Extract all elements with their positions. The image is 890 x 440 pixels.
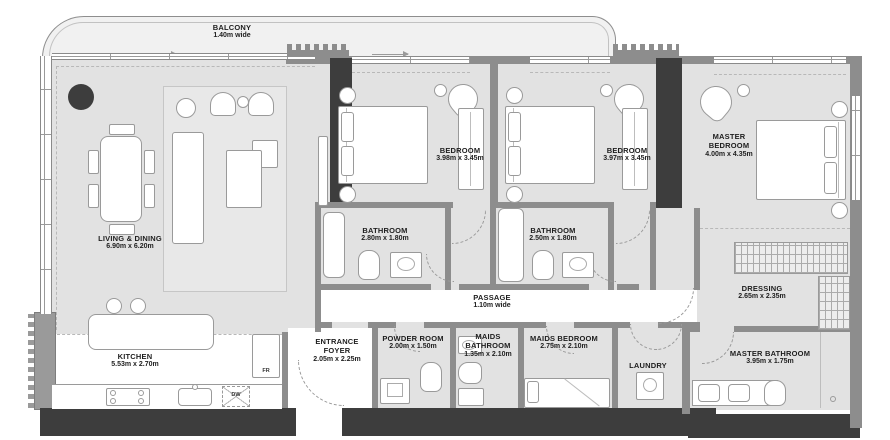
dining-chair — [144, 184, 155, 208]
wall — [315, 284, 431, 290]
burner — [138, 390, 144, 396]
burner — [110, 390, 116, 396]
pillow — [527, 381, 539, 403]
label-bathroom-1: BATHROOM2.80m x 1.80m — [335, 226, 435, 244]
structural-column — [68, 84, 94, 110]
bottom-wall-right — [688, 414, 860, 438]
dressing-wardrobe — [734, 242, 848, 274]
label-kitchen: KITCHEN5.53m x 2.70m — [75, 352, 195, 370]
label-entrance-foyer: ENTRANCE FOYER2.05m x 2.25m — [305, 337, 369, 365]
headboard-line — [838, 122, 839, 198]
wall — [372, 328, 378, 408]
basin — [387, 383, 403, 397]
coffee-table — [226, 150, 262, 208]
stool — [106, 298, 122, 314]
label-passage: PASSAGE1.10m wide — [432, 293, 552, 311]
toilet — [532, 250, 554, 280]
pillow — [824, 162, 837, 194]
label-bedroom-2: BEDROOM3.97m x 3.45m — [577, 146, 677, 164]
left-window-wall — [40, 56, 52, 314]
label-powder-room: POWDER ROOM2.00m x 1.50m — [381, 334, 445, 352]
wall — [459, 284, 589, 290]
pillow — [341, 112, 354, 142]
wall — [682, 328, 690, 414]
wall — [450, 328, 456, 408]
sofa — [172, 132, 204, 244]
side-table — [737, 84, 750, 97]
toilet — [458, 362, 482, 384]
faucet — [192, 384, 198, 390]
shower-screen — [820, 332, 821, 408]
armchair — [248, 92, 274, 116]
column-wall — [656, 58, 682, 208]
dashed-line — [530, 72, 610, 73]
louver-teeth — [287, 44, 349, 50]
label-living-dining: LIVING & DINING6.90m x 6.20m — [70, 234, 190, 252]
label-balcony: BALCONY1.40m wide — [172, 23, 292, 41]
basin — [397, 257, 415, 271]
wall — [424, 322, 546, 328]
dressing-wardrobe — [818, 276, 850, 330]
kitchen-island — [88, 314, 214, 350]
basin — [728, 384, 750, 402]
louver-teeth — [613, 44, 679, 50]
wall — [318, 322, 332, 328]
dashed-line — [56, 66, 57, 330]
dashed-line — [56, 66, 315, 67]
label-master-bathroom: MASTER BATHROOM3.95m x 1.75m — [712, 349, 828, 367]
nightstand — [506, 186, 523, 203]
shower-drain — [830, 396, 836, 402]
dining-chair — [144, 150, 155, 174]
tv-unit — [318, 136, 328, 206]
bedroom1-window — [352, 56, 470, 64]
bedroom2-window — [530, 56, 610, 64]
dining-table — [100, 136, 142, 222]
toilet — [420, 362, 442, 392]
living-window-wall — [52, 53, 315, 60]
nightstand — [831, 202, 848, 219]
nightstand — [506, 87, 523, 104]
wall — [282, 332, 288, 408]
floor-plan: DW FR — [0, 0, 890, 440]
bottom-wall — [40, 408, 716, 436]
armchair — [210, 92, 236, 116]
wall — [315, 202, 321, 332]
louver-wall — [287, 50, 349, 57]
dining-chair — [88, 184, 99, 208]
toilet — [764, 380, 786, 406]
fridge-label: FR — [252, 368, 280, 374]
dishwasher-label: DW — [222, 392, 250, 398]
toilet — [358, 250, 380, 280]
entry-door-gap — [296, 408, 342, 436]
pillow — [508, 112, 521, 142]
master-window — [714, 56, 846, 64]
basin — [569, 257, 587, 271]
pillow — [341, 146, 354, 176]
wall — [574, 322, 630, 328]
label-dressing: DRESSING2.65m x 2.35m — [712, 284, 812, 302]
nightstand — [831, 101, 848, 118]
louver-wall — [613, 50, 679, 57]
burner — [110, 398, 116, 404]
label-maids-bathroom: MAIDS BATHROOM1.35m x 2.10m — [460, 332, 516, 360]
dining-chair — [88, 150, 99, 174]
shower — [458, 388, 484, 406]
wall — [315, 202, 453, 208]
wall — [694, 208, 700, 290]
kitchen-sink — [178, 388, 212, 406]
wall — [490, 202, 496, 290]
label-bathroom-2: BATHROOM2.50m x 1.80m — [503, 226, 603, 244]
label-master-bedroom: MASTER BEDROOM4.00m x 4.35m — [694, 132, 764, 160]
label-laundry: LAUNDRY — [618, 361, 678, 370]
left-service-teeth — [28, 314, 34, 408]
washer-door — [643, 378, 657, 392]
bathtub — [323, 212, 345, 278]
bathtub — [498, 208, 524, 282]
nightstand — [339, 186, 356, 203]
wall — [617, 284, 639, 290]
basin — [698, 384, 720, 402]
wall — [650, 202, 656, 290]
burner — [138, 398, 144, 404]
right-window — [851, 96, 861, 200]
sliding-door-arrow — [372, 54, 408, 55]
wall — [490, 64, 498, 204]
dashed-line — [352, 72, 470, 73]
label-bedroom-1: BEDROOM3.98m x 3.45m — [408, 146, 512, 164]
side-table — [434, 84, 447, 97]
side-table — [176, 98, 196, 118]
dashed-line — [700, 228, 850, 229]
side-table — [600, 84, 613, 97]
nightstand — [339, 87, 356, 104]
pillow — [824, 126, 837, 158]
dining-chair — [109, 124, 135, 135]
dashed-line — [714, 74, 846, 75]
label-maids-bedroom: MAIDS BEDROOM2.75m x 2.10m — [526, 334, 602, 352]
stool — [130, 298, 146, 314]
